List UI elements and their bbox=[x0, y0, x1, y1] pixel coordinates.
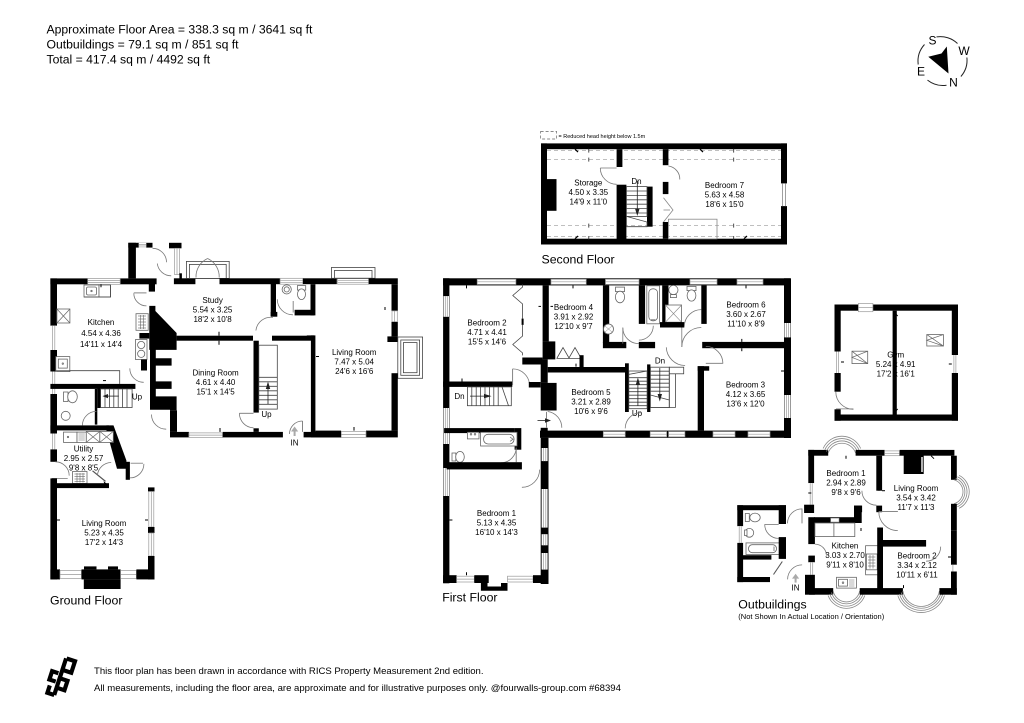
svg-text:Approximate Floor Area = 338.3: Approximate Floor Area = 338.3 sq m / 36… bbox=[47, 23, 314, 37]
svg-text:5.13 x 4.35: 5.13 x 4.35 bbox=[477, 519, 517, 528]
svg-text:Outbuildings: Outbuildings bbox=[738, 598, 806, 612]
svg-text:Total = 417.4 sq m / 4492 sq f: Total = 417.4 sq m / 4492 sq ft bbox=[47, 53, 211, 67]
svg-text:Kitchen: Kitchen bbox=[88, 318, 115, 327]
svg-text:Second Floor: Second Floor bbox=[542, 253, 615, 267]
svg-text:5.63 x 4.58: 5.63 x 4.58 bbox=[705, 191, 745, 200]
svg-text:11'10 x 8'9: 11'10 x 8'9 bbox=[727, 320, 765, 329]
svg-text:10'6 x 9'6: 10'6 x 9'6 bbox=[574, 407, 608, 416]
svg-text:Bedroom 1: Bedroom 1 bbox=[477, 509, 517, 518]
svg-text:Up: Up bbox=[132, 393, 143, 402]
svg-text:4.61 x 4.40: 4.61 x 4.40 bbox=[196, 378, 236, 387]
svg-text:Bedroom 4: Bedroom 4 bbox=[554, 303, 594, 312]
svg-text:15'5 x 14'6: 15'5 x 14'6 bbox=[468, 338, 507, 347]
svg-text:Bedroom 5: Bedroom 5 bbox=[571, 388, 611, 397]
svg-text:Dining Room: Dining Room bbox=[192, 369, 239, 378]
svg-text:Utility: Utility bbox=[74, 445, 94, 454]
svg-text:5.24 x 4.91: 5.24 x 4.91 bbox=[876, 360, 916, 369]
svg-text:4.71 x 4.41: 4.71 x 4.41 bbox=[467, 328, 507, 337]
svg-text:S: S bbox=[928, 34, 936, 48]
svg-text:4.12 x 3.65: 4.12 x 3.65 bbox=[726, 390, 766, 399]
svg-text:= Reduced head height below 1.: = Reduced head height below 1.5m bbox=[559, 134, 646, 140]
svg-text:IN: IN bbox=[792, 584, 800, 593]
svg-text:14'11 x 14'4: 14'11 x 14'4 bbox=[80, 340, 123, 349]
svg-text:13'6 x 12'0: 13'6 x 12'0 bbox=[726, 400, 765, 409]
svg-text:(Not Shown In Actual Location: (Not Shown In Actual Location / Orientat… bbox=[738, 612, 884, 621]
svg-text:3.60 x 2.67: 3.60 x 2.67 bbox=[726, 310, 766, 319]
svg-text:Living Room: Living Room bbox=[894, 484, 939, 493]
svg-text:4.50 x 3.35: 4.50 x 3.35 bbox=[569, 188, 609, 197]
svg-text:9'8 x 9'6: 9'8 x 9'6 bbox=[831, 488, 861, 497]
svg-text:Living Room: Living Room bbox=[82, 519, 127, 528]
svg-text:Bedroom 2: Bedroom 2 bbox=[897, 552, 937, 561]
svg-text:17'2 x 14'3: 17'2 x 14'3 bbox=[85, 538, 124, 547]
svg-text:18'6 x 15'0: 18'6 x 15'0 bbox=[705, 200, 744, 209]
svg-text:9'8 x 8'5: 9'8 x 8'5 bbox=[69, 464, 99, 473]
svg-text:3.54 x 3.42: 3.54 x 3.42 bbox=[896, 494, 936, 503]
svg-text:Bedroom 6: Bedroom 6 bbox=[726, 301, 766, 310]
svg-text:16'10 x 14'3: 16'10 x 14'3 bbox=[475, 528, 518, 537]
svg-text:Dn: Dn bbox=[655, 356, 665, 365]
svg-text:Dn: Dn bbox=[454, 392, 464, 401]
svg-text:4.54 x 4.36: 4.54 x 4.36 bbox=[81, 329, 121, 338]
svg-text:First Floor: First Floor bbox=[442, 591, 497, 605]
svg-text:E: E bbox=[917, 65, 925, 79]
svg-text:3.21 x 2.89: 3.21 x 2.89 bbox=[571, 398, 611, 407]
svg-text:2.94 x 2.89: 2.94 x 2.89 bbox=[826, 479, 866, 488]
svg-text:Kitchen: Kitchen bbox=[832, 542, 859, 551]
svg-text:5.23 x 4.35: 5.23 x 4.35 bbox=[84, 529, 124, 538]
svg-text:3.03 x 2.70: 3.03 x 2.70 bbox=[825, 551, 865, 560]
svg-text:3.91 x 2.92: 3.91 x 2.92 bbox=[554, 313, 594, 322]
svg-text:24'6 x 16'6: 24'6 x 16'6 bbox=[335, 367, 374, 376]
svg-text:15'1 x 14'5: 15'1 x 14'5 bbox=[196, 388, 235, 397]
svg-text:Bedroom 3: Bedroom 3 bbox=[726, 381, 766, 390]
svg-text:18'2 x 10'8: 18'2 x 10'8 bbox=[193, 315, 232, 324]
svg-text:11'7 x 11'3: 11'7 x 11'3 bbox=[897, 503, 935, 512]
svg-text:14'9 x 11'0: 14'9 x 11'0 bbox=[569, 198, 607, 207]
svg-text:2.95 x 2.57: 2.95 x 2.57 bbox=[64, 454, 104, 463]
svg-text:This floor plan has been drawn: This floor plan has been drawn in accord… bbox=[94, 666, 484, 677]
svg-text:7.47 x 5.04: 7.47 x 5.04 bbox=[334, 358, 374, 367]
svg-text:Bedroom 7: Bedroom 7 bbox=[705, 181, 745, 190]
svg-text:All measurements, including th: All measurements, including the floor ar… bbox=[94, 683, 622, 694]
svg-text:Bedroom 1: Bedroom 1 bbox=[826, 469, 866, 478]
svg-text:12'10 x 9'7: 12'10 x 9'7 bbox=[554, 322, 593, 331]
svg-text:5.54 x 3.25: 5.54 x 3.25 bbox=[193, 306, 233, 315]
svg-text:N: N bbox=[949, 76, 958, 90]
svg-text:Up: Up bbox=[261, 410, 272, 419]
svg-text:17'2 x 16'1: 17'2 x 16'1 bbox=[877, 370, 916, 379]
svg-text:10'11 x 6'11: 10'11 x 6'11 bbox=[896, 571, 938, 580]
svg-text:Storage: Storage bbox=[574, 179, 603, 188]
svg-text:Outbuildings = 79.1 sq m / 851: Outbuildings = 79.1 sq m / 851 sq ft bbox=[47, 38, 240, 52]
svg-text:IN: IN bbox=[291, 439, 299, 448]
svg-text:3.34 x 2.12: 3.34 x 2.12 bbox=[897, 561, 937, 570]
svg-text:Dn: Dn bbox=[631, 177, 641, 186]
svg-text:Study: Study bbox=[202, 296, 222, 305]
svg-text:W: W bbox=[958, 44, 970, 58]
svg-text:Gym: Gym bbox=[887, 351, 904, 360]
svg-text:Living Room: Living Room bbox=[332, 348, 377, 357]
svg-text:9'11 x 8'10: 9'11 x 8'10 bbox=[826, 561, 864, 570]
svg-text:Ground Floor: Ground Floor bbox=[50, 594, 122, 608]
svg-text:Bedroom 2: Bedroom 2 bbox=[467, 319, 507, 328]
